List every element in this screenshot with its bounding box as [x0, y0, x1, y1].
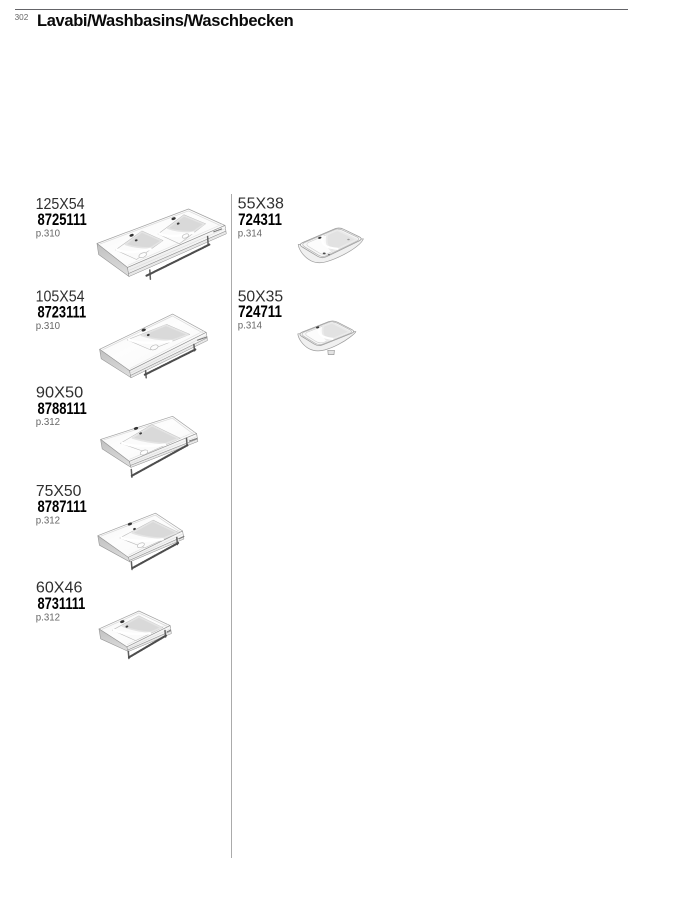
svg-text:8788111: 8788111	[38, 400, 87, 418]
svg-text:8787111: 8787111	[38, 498, 87, 516]
svg-text:724311: 724311	[238, 211, 282, 229]
svg-text:p.312: p.312	[36, 613, 60, 624]
svg-text:p.312: p.312	[36, 417, 60, 428]
svg-text:p.312: p.312	[36, 516, 60, 527]
svg-text:8723111: 8723111	[38, 303, 87, 321]
svg-text:p.310: p.310	[36, 321, 61, 332]
svg-text:p.314: p.314	[238, 228, 263, 239]
svg-text:p.314: p.314	[238, 320, 263, 331]
svg-text:8731111: 8731111	[38, 595, 86, 613]
svg-text:8725111: 8725111	[38, 211, 87, 229]
svg-text:724711: 724711	[238, 303, 282, 321]
svg-text:p.310: p.310	[36, 228, 61, 239]
